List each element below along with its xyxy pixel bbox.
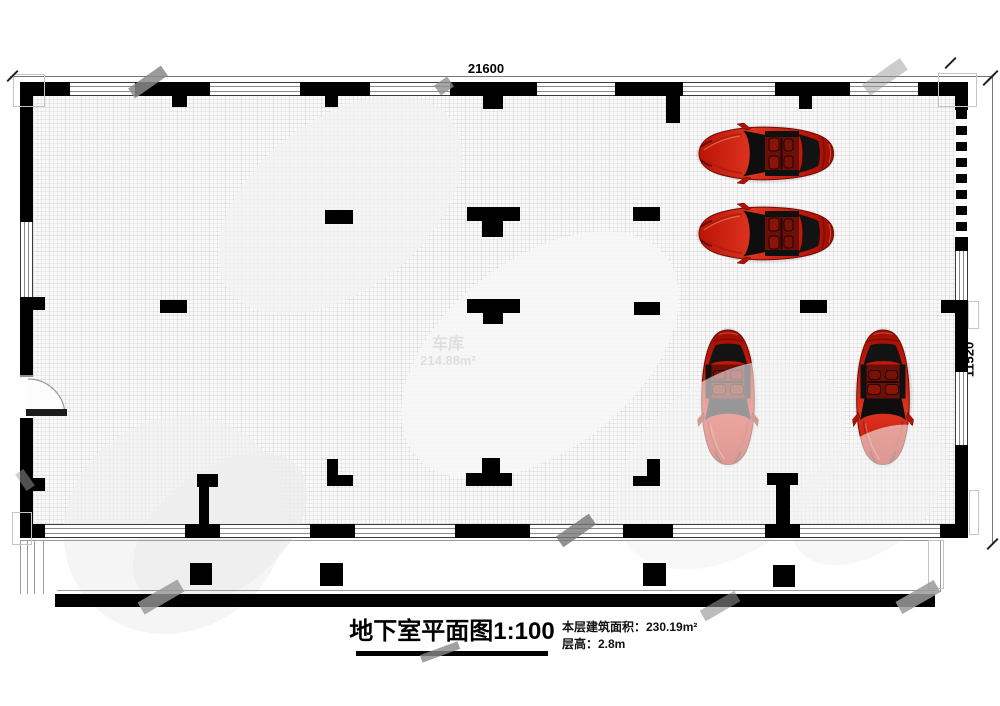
window-segment — [220, 524, 310, 538]
window-segment — [537, 82, 615, 96]
floor-area-line: 本层建筑面积：230.19m² — [562, 619, 697, 636]
wall-segment — [765, 524, 800, 538]
wall-segment — [20, 297, 45, 310]
wall-segment — [623, 524, 673, 538]
column — [172, 96, 187, 107]
dimension-line-right — [992, 76, 993, 544]
strip-hairline — [34, 540, 35, 594]
wall-segment — [955, 237, 968, 251]
floor-height-line: 层高：2.8m — [562, 636, 697, 653]
strip-hairline — [20, 540, 21, 594]
column — [483, 96, 503, 109]
column — [666, 96, 680, 123]
window-segment — [683, 82, 775, 96]
window-segment — [70, 82, 135, 96]
window-segment — [955, 250, 968, 300]
wall-segment — [450, 82, 537, 96]
window-segment — [955, 372, 968, 445]
garage-opening-dashed — [956, 110, 967, 237]
column — [776, 485, 790, 524]
dimension-tick — [944, 57, 956, 69]
strip-column — [190, 563, 212, 585]
column — [467, 207, 520, 221]
column — [199, 487, 209, 524]
column — [197, 474, 218, 487]
column — [327, 475, 353, 486]
column — [325, 210, 353, 224]
wall-segment — [775, 82, 850, 96]
strip-hairline — [20, 540, 940, 541]
column — [800, 300, 827, 313]
strip-hairline — [27, 540, 28, 594]
column — [633, 207, 660, 221]
extension-box — [12, 512, 32, 545]
column — [466, 473, 512, 486]
drawing-sheet: 车库 214.88m² 21600 11520 地下室平面图1:100 本层建筑… — [0, 0, 1000, 706]
window-segment — [355, 524, 455, 538]
window-segment — [800, 524, 940, 538]
strip-hairline — [57, 590, 935, 591]
column — [799, 96, 812, 109]
column — [767, 473, 798, 485]
window-segment — [210, 82, 300, 96]
column — [634, 302, 660, 315]
wall-segment — [455, 524, 530, 538]
column — [325, 96, 338, 107]
extension-box — [13, 74, 45, 107]
extension-box — [969, 490, 979, 535]
strip-column — [643, 563, 666, 586]
extension-box — [968, 301, 979, 329]
wall-segment — [300, 82, 370, 96]
strip-column — [773, 565, 795, 587]
column — [482, 221, 503, 237]
dimension-top-value: 21600 — [455, 61, 517, 76]
column — [633, 476, 660, 486]
wall-segment — [941, 300, 968, 313]
wall-segment — [955, 445, 968, 538]
floor-plan: 车库 214.88m² 21600 11520 地下室平面图1:100 本层建筑… — [0, 0, 1000, 706]
strip-hairline — [43, 540, 44, 594]
drawing-title: 地下室平面图1:100 — [348, 611, 556, 646]
window-segment — [45, 524, 185, 538]
column — [482, 458, 500, 474]
wall-segment — [615, 82, 683, 96]
strip-column — [320, 563, 343, 586]
title-info: 本层建筑面积：230.19m² 层高：2.8m — [562, 619, 697, 653]
column — [160, 300, 187, 313]
column — [483, 313, 503, 324]
window-segment — [20, 222, 33, 297]
column — [467, 299, 520, 313]
wall-segment — [310, 524, 355, 538]
retaining-wall-bar — [55, 594, 935, 607]
window-segment — [673, 524, 765, 538]
wall-segment — [185, 524, 220, 538]
extension-box — [938, 73, 977, 107]
